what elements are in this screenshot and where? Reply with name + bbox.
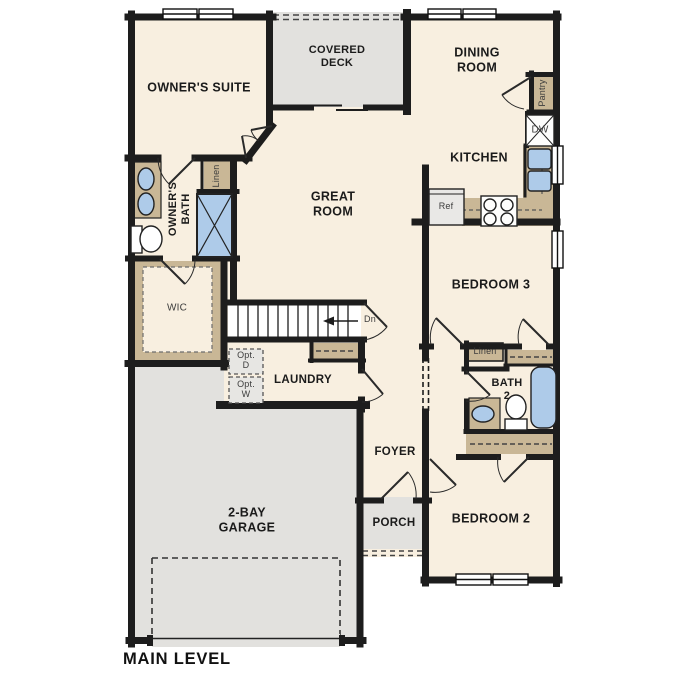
linen-owners-label: Linen bbox=[212, 164, 222, 187]
stairs-dn-label: Dn bbox=[364, 315, 376, 325]
plan-title: MAIN LEVEL bbox=[123, 650, 231, 669]
kitchen-label: KITCHEN bbox=[450, 151, 508, 166]
garage-door bbox=[147, 634, 345, 647]
foyer-label: FOYER bbox=[374, 446, 415, 460]
optional-washer-label: Opt. W bbox=[233, 380, 259, 400]
floor-plan-drawing bbox=[0, 0, 687, 687]
floor-plan-canvas: OWNER'S SUITE COVERED DECK DINING ROOM K… bbox=[0, 0, 687, 687]
garage-label: 2-BAY GARAGE bbox=[215, 505, 279, 535]
owners-suite-label: OWNER'S SUITE bbox=[144, 81, 254, 96]
bedroom3-label: BEDROOM 3 bbox=[452, 278, 530, 293]
bedroom2-label: BEDROOM 2 bbox=[452, 512, 530, 527]
refrigerator-label: Ref bbox=[439, 202, 454, 212]
pantry-label: Pantry bbox=[538, 79, 548, 106]
dishwasher-label: DW bbox=[531, 125, 548, 136]
dining-room-label: DINING ROOM bbox=[437, 45, 517, 75]
laundry-label: LAUNDRY bbox=[274, 374, 332, 388]
optional-dryer-label: Opt. D bbox=[233, 351, 259, 371]
wic-label: WIC bbox=[167, 303, 187, 314]
owners-bath-label: OWNER'S BATH bbox=[167, 176, 193, 242]
staircase bbox=[228, 306, 361, 337]
bath2-label: BATH 2 bbox=[488, 377, 526, 403]
porch-label: PORCH bbox=[372, 517, 415, 531]
great-room-label: GREAT ROOM bbox=[293, 189, 373, 219]
covered-deck-label: COVERED DECK bbox=[297, 44, 377, 70]
linen-hall-label: Linen bbox=[473, 347, 496, 357]
